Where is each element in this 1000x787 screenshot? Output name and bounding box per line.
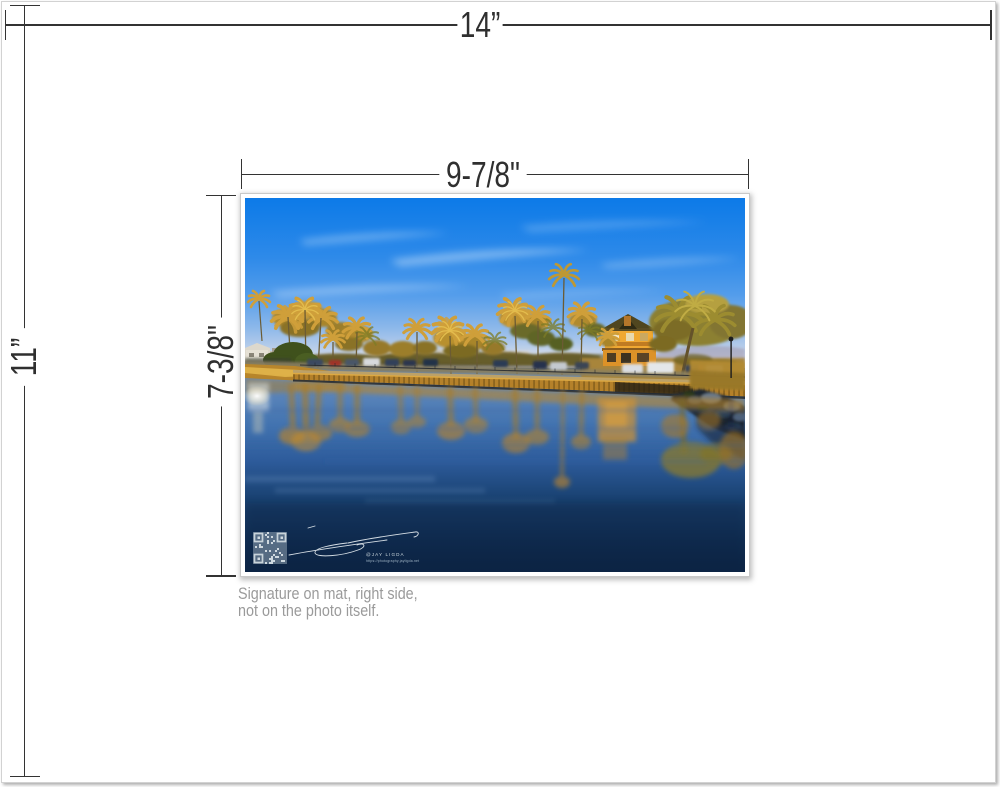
svg-text:@JAY LIGDA: @JAY LIGDA xyxy=(366,552,405,557)
svg-text:https://photography.jayligda.n: https://photography.jayligda.net xyxy=(366,559,419,563)
